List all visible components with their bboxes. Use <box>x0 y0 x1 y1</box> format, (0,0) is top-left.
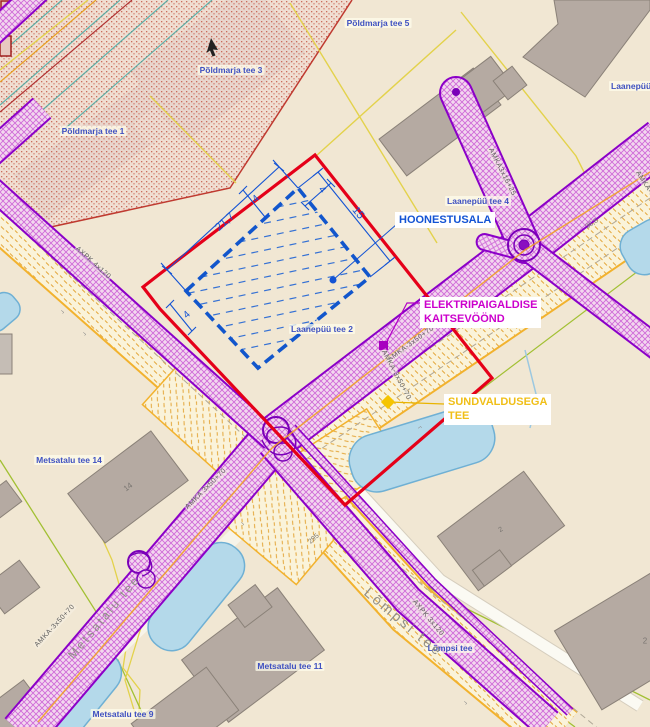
kaitsevoond-label-line2: KAITSEVÖÖND <box>424 312 537 326</box>
building-number: 2 <box>643 637 647 646</box>
street-label: Metsatalu tee 14 <box>34 455 104 465</box>
detail-plan-hatch-zone <box>0 0 352 238</box>
pole-dot <box>452 88 460 96</box>
pole-node <box>508 229 540 261</box>
street-label: Laanepüü tee 2 <box>289 324 355 334</box>
street-label: Põldmarja tee 1 <box>60 126 127 136</box>
hoonestusala-label: HOONESTUSALA <box>399 214 491 226</box>
street-label: Laanepüü tee <box>609 81 650 91</box>
sundvaldus-label-line2: TEE <box>448 409 547 423</box>
kaitsevoond-callout: ELEKTRIPAIGALDISE KAITSEVÖÖND <box>420 297 541 328</box>
sundvaldus-label-line1: SUNDVALDUSEGA <box>448 395 547 409</box>
street-label: Põldmarja tee 3 <box>198 65 265 75</box>
kaitsevoond-label-line1: ELEKTRIPAIGALDISE <box>424 298 537 312</box>
street-label: Metsatalu tee 9 <box>91 709 156 719</box>
sundvaldus-callout: SUNDVALDUSEGA TEE <box>444 394 551 425</box>
street-label: Laanepüü tee 4 <box>445 196 511 206</box>
hoonestusala-callout: HOONESTUSALA <box>395 212 495 228</box>
street-label: Metsatalu tee 11 <box>255 661 324 671</box>
map-canvas[interactable]: Põldmarja tee 5 Põldmarja tee 3 Põldmarj… <box>0 0 650 727</box>
street-label: Põldmarja tee 5 <box>345 18 412 28</box>
